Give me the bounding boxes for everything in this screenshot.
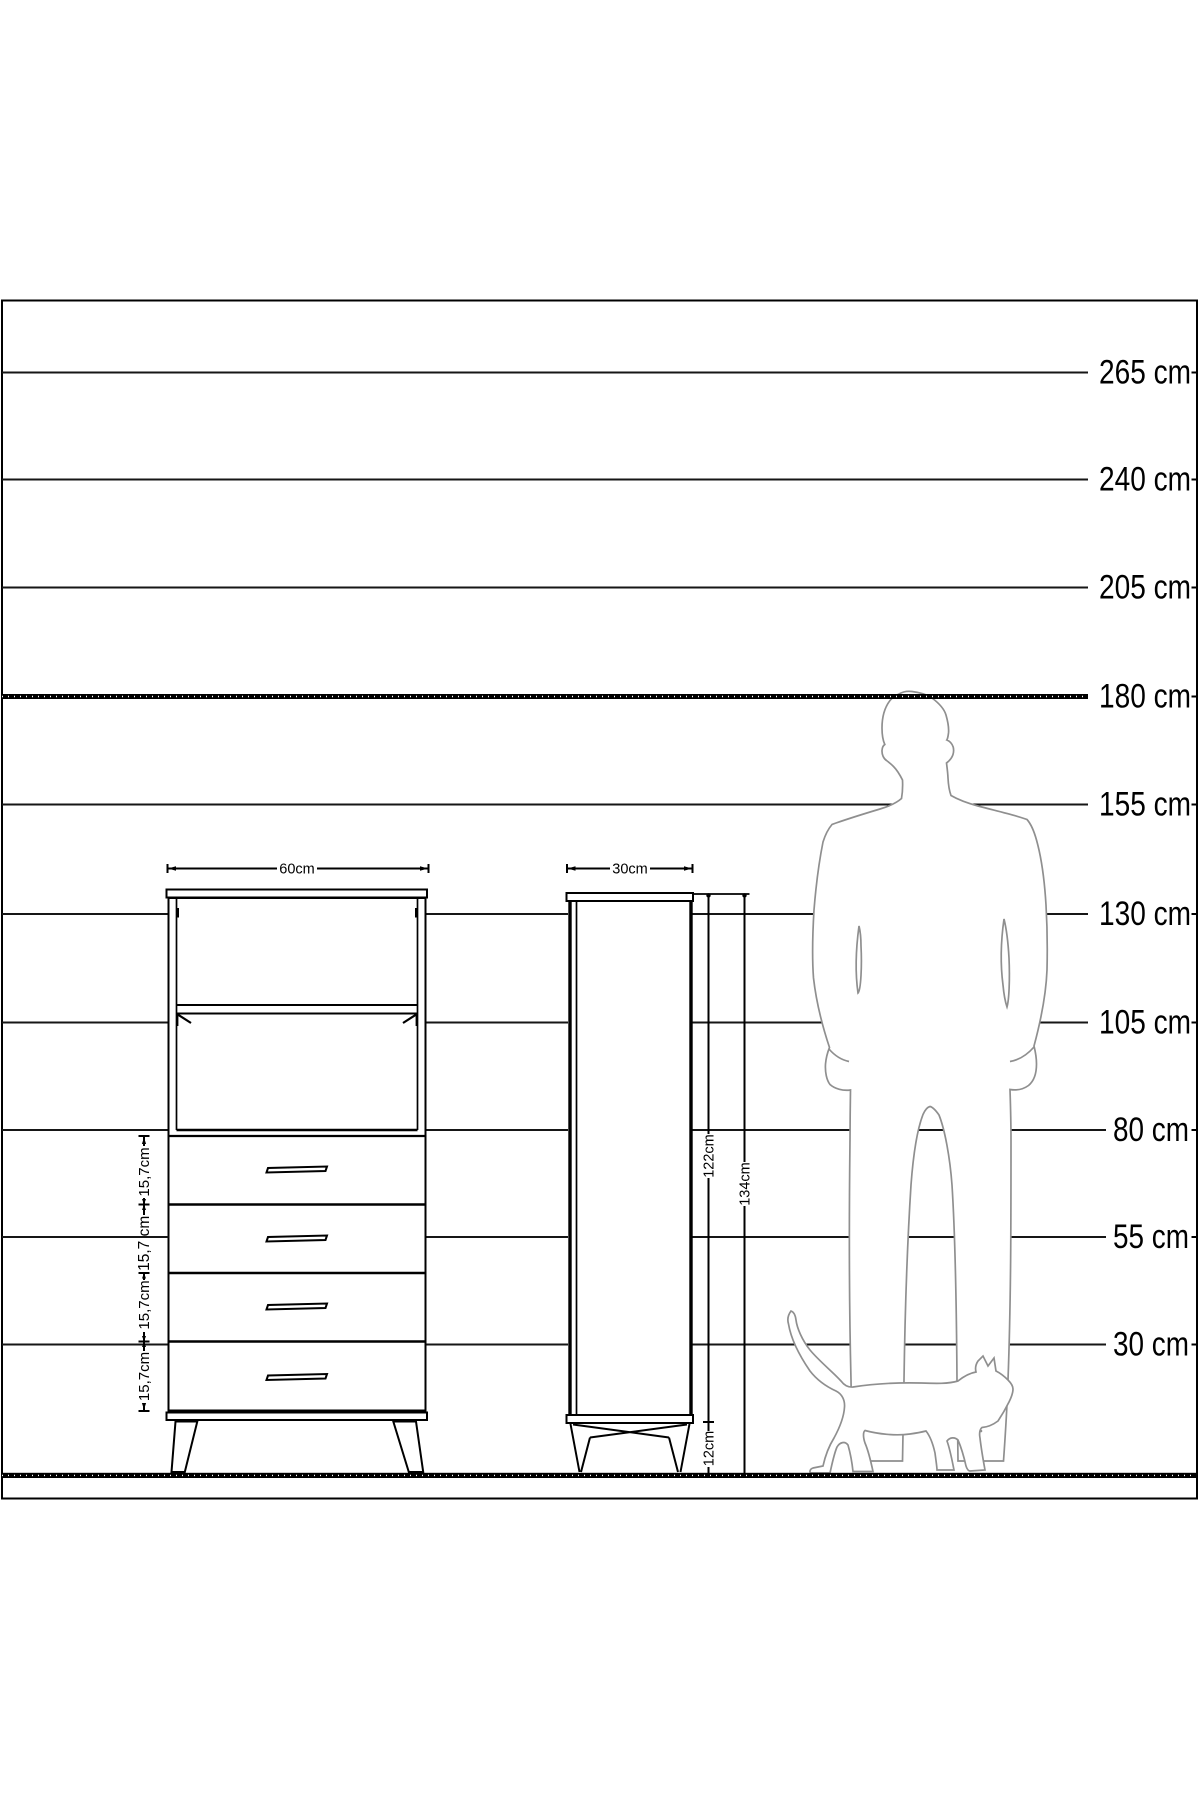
svg-text:15,7 cm: 15,7 cm [136, 1216, 153, 1271]
svg-text:134cm: 134cm [738, 1162, 754, 1206]
svg-text:15,7cm: 15,7cm [136, 1280, 153, 1329]
svg-text:105 cm: 105 cm [1099, 1004, 1191, 1042]
svg-text:80 cm: 80 cm [1113, 1111, 1189, 1149]
svg-text:155 cm: 155 cm [1099, 786, 1191, 824]
svg-text:180 cm: 180 cm [1099, 678, 1191, 716]
svg-text:205 cm: 205 cm [1099, 569, 1191, 607]
svg-text:12cm: 12cm [702, 1431, 718, 1466]
svg-text:55 cm: 55 cm [1113, 1218, 1189, 1256]
svg-text:30 cm: 30 cm [1113, 1326, 1189, 1364]
svg-text:130 cm: 130 cm [1099, 895, 1191, 933]
svg-text:15,7cm: 15,7cm [136, 1352, 153, 1401]
svg-text:60cm: 60cm [279, 862, 314, 878]
svg-text:265 cm: 265 cm [1099, 354, 1191, 392]
svg-text:30cm: 30cm [612, 862, 647, 878]
svg-text:15,7cm: 15,7cm [136, 1147, 153, 1196]
svg-text:122cm: 122cm [702, 1134, 718, 1178]
svg-text:240 cm: 240 cm [1099, 461, 1191, 499]
